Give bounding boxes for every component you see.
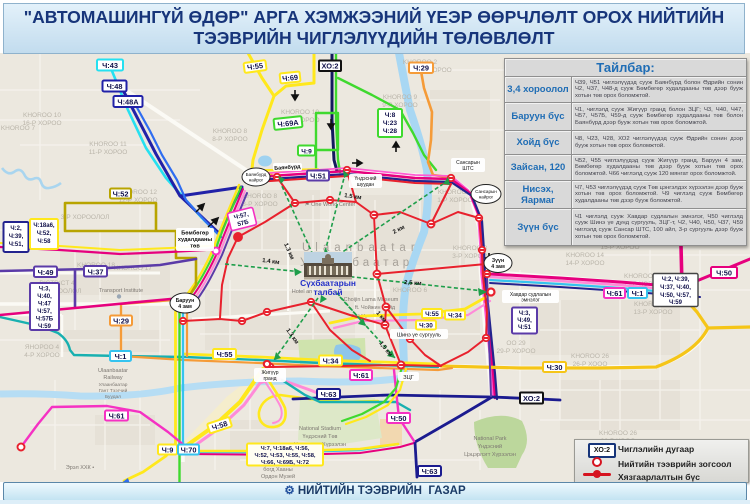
svg-text:ЗЦГ: ЗЦГ <box>403 375 414 381</box>
svg-text:Ч:34: Ч:34 <box>448 313 462 320</box>
svg-text:төв: төв <box>190 244 200 250</box>
svg-text:Ч:61: Ч:61 <box>353 371 369 380</box>
svg-text:Ч:34: Ч:34 <box>323 357 340 366</box>
svg-text:Ч:52,: Ч:52, <box>37 231 52 237</box>
svg-text:Ч:2, Ч:39,: Ч:2, Ч:39, <box>662 277 690 283</box>
svg-text:KHOROO 10: KHOROO 10 <box>23 112 61 119</box>
svg-text:Ч:29: Ч:29 <box>113 317 129 326</box>
svg-text:Ч:66, Ч:69Б, Ч:72: Ч:66, Ч:69Б, Ч:72 <box>261 460 309 466</box>
svg-text:KHOROO 9: KHOROO 9 <box>383 94 418 101</box>
svg-text:Ч:9: Ч:9 <box>162 446 174 455</box>
svg-text:найрог: найрог <box>249 177 264 183</box>
svg-text:Ч:37: Ч:37 <box>88 268 104 277</box>
svg-text:KHOROO 10: KHOROO 10 <box>281 109 319 116</box>
svg-text:найрог: найрог <box>479 194 494 200</box>
svg-text:Railway: Railway <box>103 375 123 381</box>
svg-text:Ч:69: Ч:69 <box>282 73 299 84</box>
svg-text:Ч:23: Ч:23 <box>383 120 397 127</box>
svg-text:14-Р ХОРОО: 14-Р ХОРОО <box>565 260 604 267</box>
svg-text:Ч:18а6,: Ч:18а6, <box>33 223 55 229</box>
svg-text:Ч:55: Ч:55 <box>217 350 233 359</box>
svg-text:Сансарын: Сансарын <box>475 189 497 194</box>
svg-text:4 зам: 4 зам <box>178 304 192 310</box>
svg-text:Ордон Музей: Ордон Музей <box>261 473 295 480</box>
svg-text:Ч:28: Ч:28 <box>383 128 397 135</box>
svg-text:Ч:30: Ч:30 <box>547 363 563 372</box>
svg-text:Ч:58: Ч:58 <box>38 239 52 245</box>
svg-text:шуудан: шуудан <box>357 182 375 188</box>
svg-text:Ч:29: Ч:29 <box>413 64 429 73</box>
svg-text:Буудал: Буудал <box>105 394 121 400</box>
svg-text:талбай: талбай <box>314 287 343 297</box>
svg-text:Ulaanbaatar: Ulaanbaatar <box>98 368 128 374</box>
svg-text:Ч:50: Ч:50 <box>716 269 732 278</box>
svg-text:Ч:8: Ч:8 <box>385 112 396 119</box>
svg-text:Шинэ үе сургууль: Шинэ үе сургууль <box>397 333 441 339</box>
svg-text:Ч:37, Ч:40,: Ч:37, Ч:40, <box>660 285 691 291</box>
svg-text:Ч:2,: Ч:2, <box>10 226 22 232</box>
svg-text:KHOROO 26: KHOROO 26 <box>599 430 637 437</box>
svg-text:Ч:9: Ч:9 <box>301 149 312 156</box>
svg-text:Эрэл ХХК •: Эрэл ХХК • <box>66 465 95 471</box>
svg-text:KHOROO 6: KHOROO 6 <box>393 287 428 294</box>
svg-text:8-Р ХОРОО: 8-Р ХОРОО <box>212 136 247 143</box>
svg-text:Ч:55: Ч:55 <box>425 311 439 318</box>
svg-text:Ч:59: Ч:59 <box>669 300 683 306</box>
svg-text:KHOROO 8: KHOROO 8 <box>243 193 278 200</box>
svg-text:Ч:51,: Ч:51, <box>9 242 24 248</box>
svg-text:Үндэсний: Үндэсний <box>478 443 502 450</box>
svg-text:Ч:61: Ч:61 <box>607 289 623 298</box>
svg-text:ШТС: ШТС <box>462 166 474 172</box>
svg-text:KHOROO 26: KHOROO 26 <box>571 353 609 360</box>
svg-text:National Stadium: National Stadium <box>299 426 341 432</box>
svg-text:Ч:63: Ч:63 <box>321 390 337 399</box>
svg-text:4-Р ХОРОО: 4-Р ХОРОО <box>24 352 59 359</box>
svg-text:Ч:49: Ч:49 <box>38 268 54 277</box>
svg-text:Ч:57Б: Ч:57Б <box>36 317 54 323</box>
svg-text:ХО:2: ХО:2 <box>523 394 540 403</box>
svg-text:Ч:48: Ч:48 <box>107 82 123 91</box>
svg-text:Ч:50, Ч:57,: Ч:50, Ч:57, <box>660 293 691 299</box>
svg-text:11-Р ХОРОО: 11-Р ХОРОО <box>89 149 128 156</box>
svg-text:3-Р ХОРООЛОЛ: 3-Р ХОРООЛОЛ <box>61 214 110 221</box>
svg-text:Баянбүрд: Баянбүрд <box>246 172 267 177</box>
svg-text:29-Р ХОРОО: 29-Р ХОРОО <box>496 348 535 355</box>
svg-text:Ч:59: Ч:59 <box>38 324 52 330</box>
svg-text:худалдааны: худалдааны <box>178 237 213 243</box>
svg-text:Үндэсний Төв: Үндэсний Төв <box>303 433 338 440</box>
svg-text:Ч:57,: Ч:57, <box>37 309 52 315</box>
svg-text:ОО 29: ОО 29 <box>506 340 526 347</box>
svg-text:4 зам: 4 зам <box>491 264 505 270</box>
svg-text:Улаанбаатар: Улаанбаатар <box>99 382 128 388</box>
svg-text:Choijin Lama Museum: Choijin Lama Museum <box>344 297 399 303</box>
svg-text:13-Р ХОРОО: 13-Р ХОРОО <box>633 309 672 316</box>
svg-text:Ч:52, Ч:53, Ч:55, Ч:58,: Ч:52, Ч:53, Ч:55, Ч:58, <box>254 453 315 459</box>
svg-text:Ч:1: Ч:1 <box>115 352 127 361</box>
svg-text:Ч:50: Ч:50 <box>391 414 407 423</box>
svg-text:2,5 км: 2,5 км <box>404 280 422 287</box>
svg-text:Гант Тээгчий: Гант Тээгчий <box>99 387 128 394</box>
svg-text:Ч:43: Ч:43 <box>102 61 118 70</box>
svg-text:KHOROO 11: KHOROO 11 <box>89 141 127 148</box>
svg-text:Ч:7, Ч:18а6, Ч:56,: Ч:7, Ч:18а6, Ч:56, <box>261 446 310 452</box>
svg-text:Hotel an: Hotel an <box>292 289 313 295</box>
svg-text:Ч:3,: Ч:3, <box>39 287 51 293</box>
svg-text:Ч:3,: Ч:3, <box>519 311 531 317</box>
svg-text:эмнэлэг: эмнэлэг <box>521 298 540 304</box>
svg-text:ХО:2: ХО:2 <box>321 62 338 71</box>
svg-text:Ч:61: Ч:61 <box>109 412 125 421</box>
svg-text:Ч:40,: Ч:40, <box>37 294 52 300</box>
svg-text:KHOROO 7: KHOROO 7 <box>1 125 36 132</box>
svg-text:ЯНОРОО 4: ЯНОРОО 4 <box>25 344 60 351</box>
svg-text:8-Р ХОРОО: 8-Р ХОРОО <box>242 201 277 208</box>
svg-text:KHOROO 8: KHOROO 8 <box>213 128 248 135</box>
svg-text:Ч:63: Ч:63 <box>422 467 438 476</box>
svg-text:Ч:52: Ч:52 <box>113 190 129 199</box>
svg-text:Ч:47: Ч:47 <box>38 302 52 308</box>
svg-text:Ч:39,: Ч:39, <box>9 234 24 240</box>
svg-text:Ч:51: Ч:51 <box>518 325 532 331</box>
svg-text:Бөмбөгөр: Бөмбөгөр <box>181 230 209 237</box>
svg-text:Ч:51: Ч:51 <box>310 172 326 181</box>
svg-text:Transport Institute: Transport Institute <box>99 288 143 294</box>
svg-text:богд Хааны: богд Хааны <box>263 467 293 473</box>
svg-text:Ч:70: Ч:70 <box>181 446 197 455</box>
svg-text:Цэцэрлэгт Хүрээлэн: Цэцэрлэгт Хүрээлэн <box>464 452 516 458</box>
svg-text:National Park: National Park <box>473 436 506 442</box>
svg-text:Ч:30: Ч:30 <box>419 323 433 330</box>
svg-text:KHOROO 14: KHOROO 14 <box>566 252 604 259</box>
svg-text:гранд: гранд <box>263 376 276 382</box>
svg-text:Ч:49,: Ч:49, <box>517 318 532 324</box>
svg-text:Ч:1: Ч:1 <box>632 289 644 298</box>
svg-text:Үндэсний: Үндэсний <box>355 175 377 182</box>
svg-text:Ч:48А: Ч:48А <box>117 98 139 107</box>
